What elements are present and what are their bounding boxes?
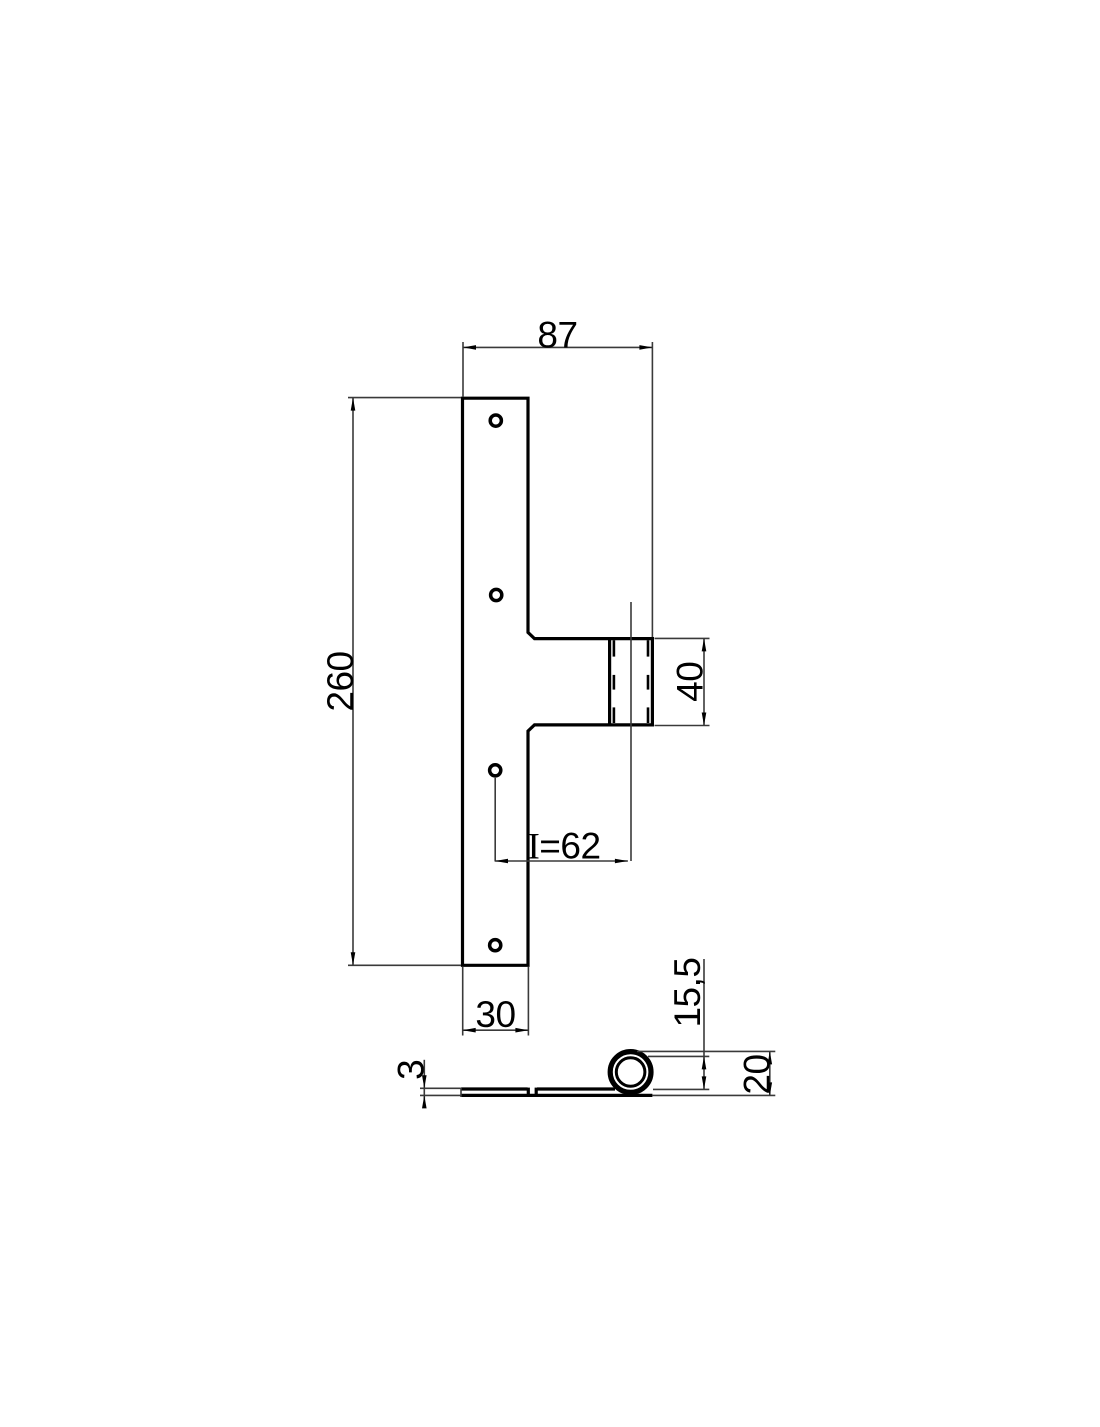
svg-text:I=62: I=62	[527, 826, 600, 868]
svg-text:260: 260	[320, 651, 361, 711]
svg-text:3: 3	[391, 1060, 432, 1080]
svg-text:20: 20	[736, 1054, 777, 1094]
svg-text:87: 87	[537, 314, 577, 355]
svg-text:30: 30	[475, 994, 515, 1035]
svg-text:15,5: 15,5	[667, 957, 708, 1027]
svg-text:40: 40	[669, 662, 710, 702]
